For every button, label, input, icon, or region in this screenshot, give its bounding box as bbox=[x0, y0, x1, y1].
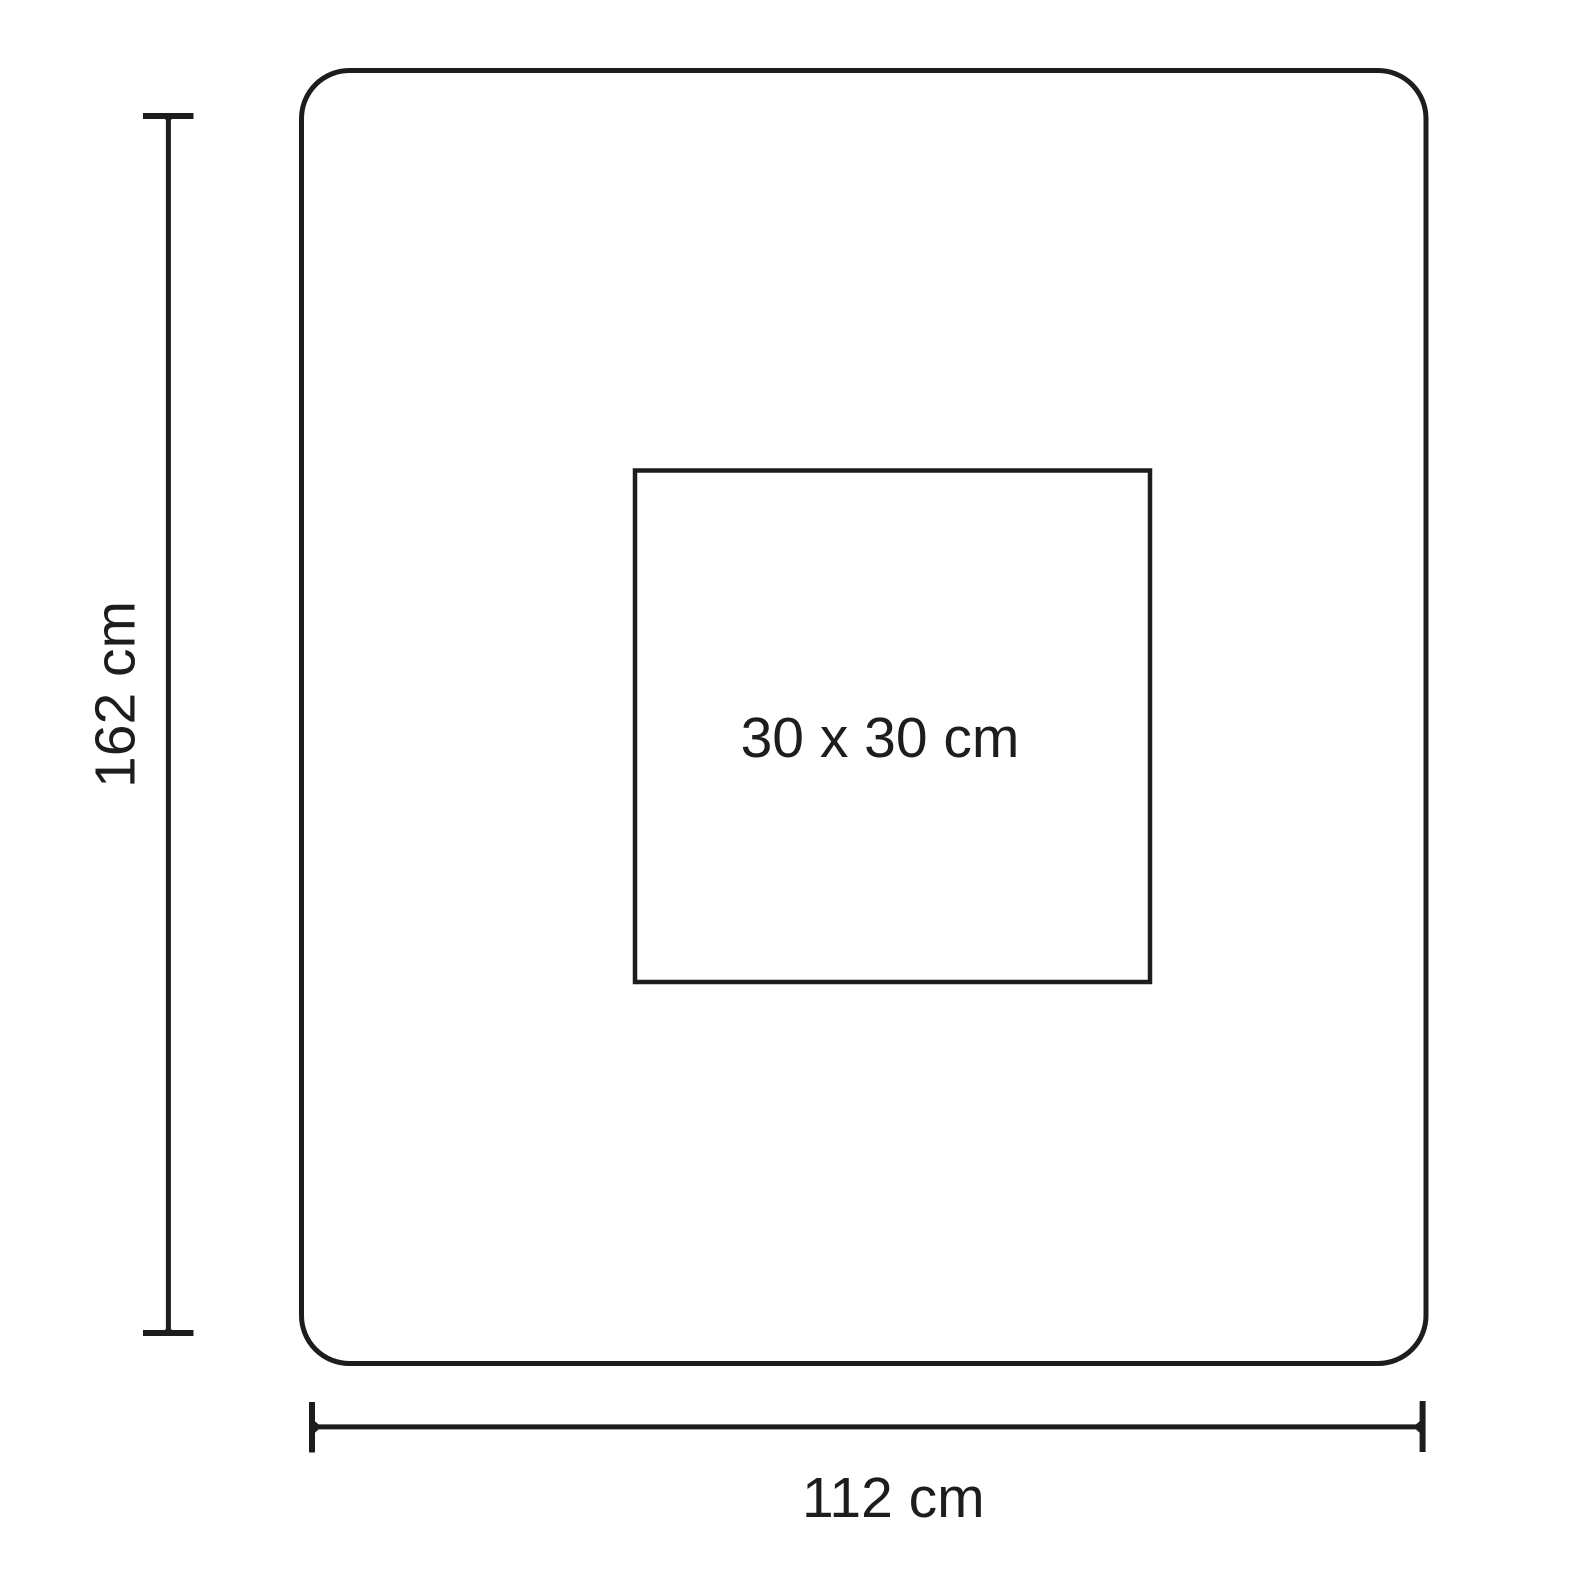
svg-text:30 x 30 cm: 30 x 30 cm bbox=[741, 706, 1020, 770]
svg-text:112 cm: 112 cm bbox=[802, 1466, 985, 1530]
svg-text:162 cm: 162 cm bbox=[84, 601, 148, 788]
